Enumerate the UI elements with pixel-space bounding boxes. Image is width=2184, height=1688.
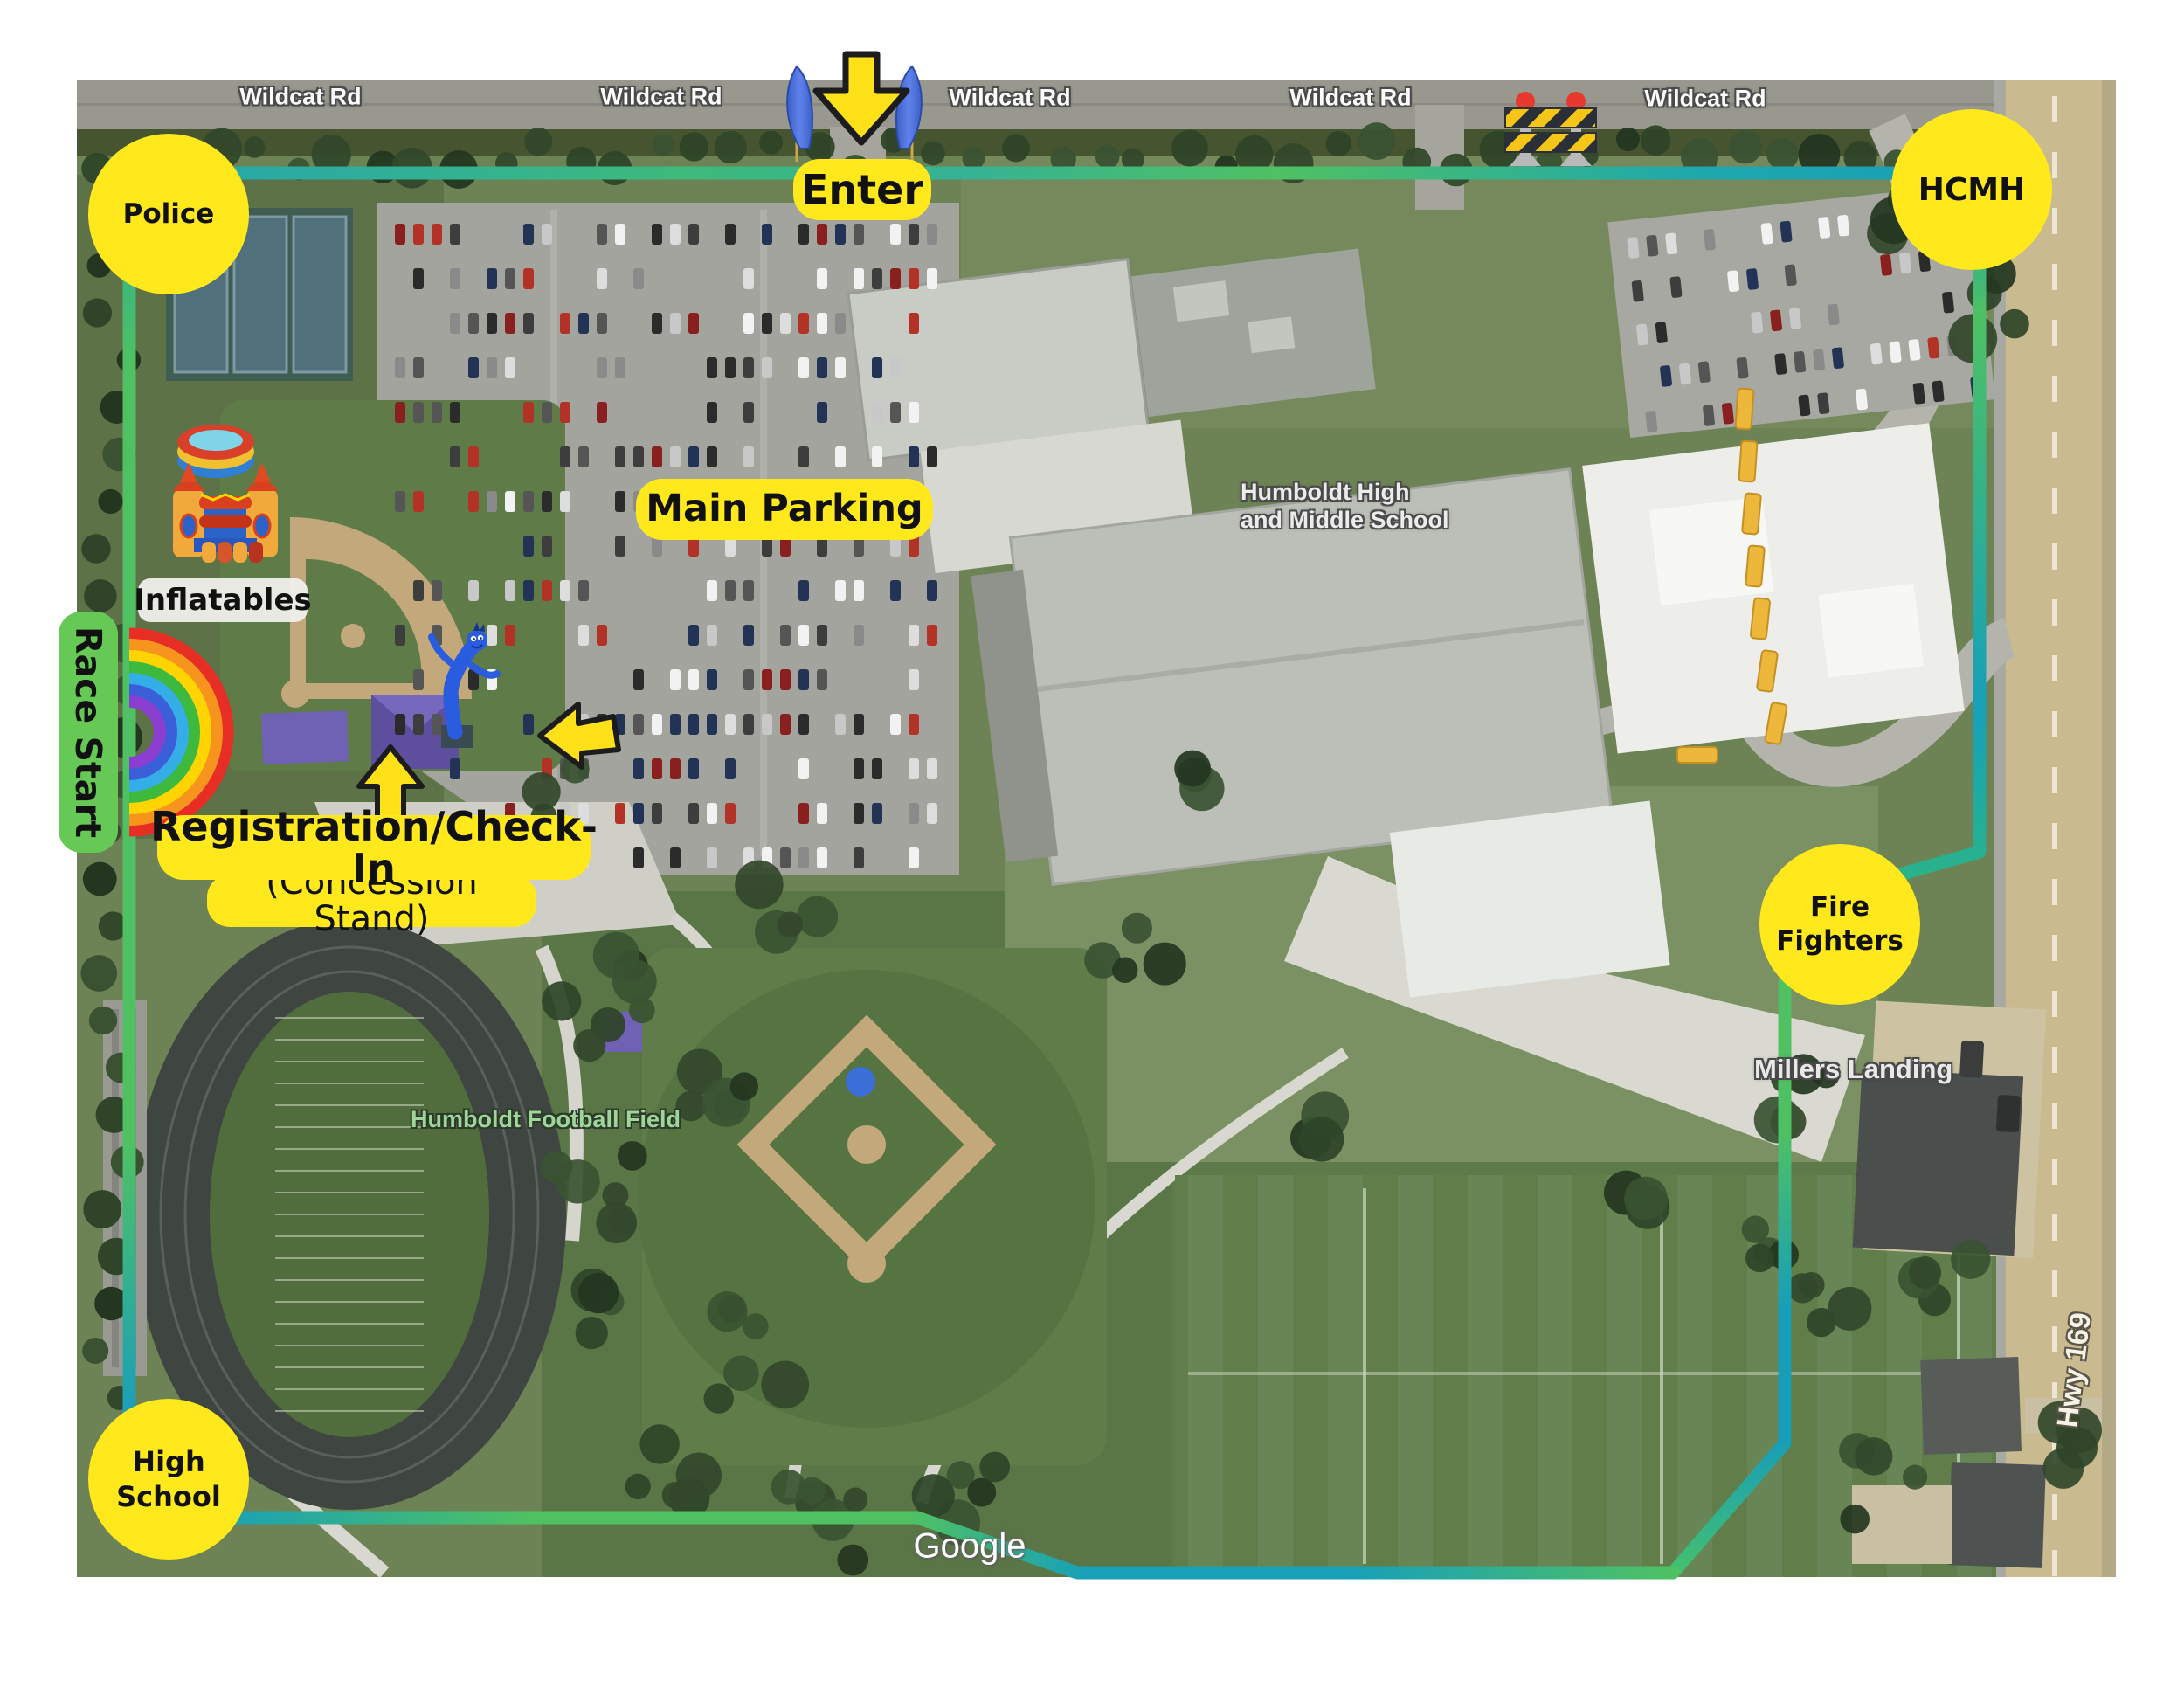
road-label-wildcat-1: Wildcat Rd <box>239 84 361 111</box>
race-map: Wildcat Rd Wildcat Rd Wildcat Rd Wildcat… <box>0 0 2184 1688</box>
road-label-wildcat-5: Wildcat Rd <box>1644 86 1766 113</box>
registration-label: Registration/Check-In <box>157 815 591 880</box>
police-marker: Police <box>88 134 249 294</box>
road-label-wildcat-4: Wildcat Rd <box>1289 85 1411 112</box>
fire-fighters-line1: Fire <box>1810 890 1870 924</box>
race-start-label: Race Start <box>59 612 118 853</box>
drop-off-arrow-icon <box>540 704 619 767</box>
school-name-line2: and Middle School <box>1241 507 1449 535</box>
millers-landing-label: Millers Landing <box>1754 1054 1952 1085</box>
bounce-house-icon <box>173 463 278 563</box>
school-name-line1: Humboldt High <box>1241 479 1449 507</box>
fire-fighters-line2: Fighters <box>1776 924 1904 958</box>
enter-arrow-icon <box>816 54 907 142</box>
inflatables-label: Inflatables <box>138 578 308 622</box>
tube-man-icon <box>432 622 497 748</box>
high-school-line1: High <box>132 1444 204 1479</box>
race-start-text: Race Start <box>67 626 109 838</box>
road-label-wildcat-2: Wildcat Rd <box>600 84 722 111</box>
high-school-marker: High School <box>88 1399 249 1560</box>
hcmh-marker: HCMH <box>1891 109 2052 270</box>
football-field-label: Humboldt Football Field <box>411 1106 681 1133</box>
main-parking-label: Main Parking <box>636 479 933 540</box>
road-label-wildcat-3: Wildcat Rd <box>949 85 1070 112</box>
enter-label: Enter <box>793 159 931 220</box>
google-watermark: Google <box>914 1527 1026 1567</box>
barricade-icon <box>1505 92 1596 166</box>
high-school-line2: School <box>116 1479 221 1514</box>
fire-fighters-marker: Fire Fighters <box>1759 844 1920 1005</box>
school-name-label: Humboldt High and Middle School <box>1241 479 1449 535</box>
rainbow-icon <box>129 634 227 830</box>
